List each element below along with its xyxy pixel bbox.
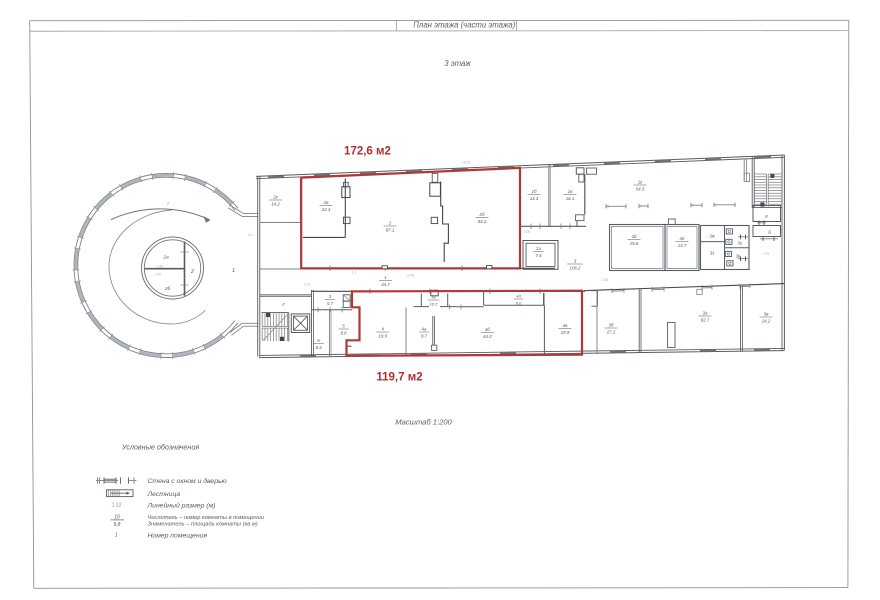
svg-text:19.9: 19.9 (561, 330, 570, 335)
svg-text:1в: 1в (568, 189, 573, 194)
svg-text:1.1: 1.1 (352, 271, 357, 275)
svg-text:19.9: 19.9 (378, 334, 387, 339)
svg-text:19.6: 19.6 (630, 241, 639, 246)
svg-text:1: 1 (232, 268, 235, 274)
svg-text:172,6 м2: 172,6 м2 (344, 146, 391, 158)
svg-text:1а: 1а (536, 246, 541, 251)
svg-text:22.3: 22.3 (321, 207, 331, 212)
svg-text:8.8: 8.8 (340, 331, 347, 336)
svg-text:Условные обозначения: Условные обозначения (121, 442, 200, 451)
svg-text:14.2: 14.2 (762, 319, 771, 324)
svg-text:44.7: 44.7 (381, 282, 390, 287)
svg-text:4б: 4б (485, 327, 490, 332)
svg-text:1.12: 1.12 (112, 503, 122, 509)
svg-text:2б: 2б (164, 286, 171, 292)
svg-text:10.2: 10.2 (430, 302, 439, 307)
svg-text:10: 10 (114, 514, 120, 520)
svg-text:14.2: 14.2 (271, 202, 280, 207)
svg-text:Номер помещения: Номер помещения (148, 532, 208, 539)
svg-text:14.05: 14.05 (462, 161, 470, 165)
svg-text:14.65: 14.65 (406, 274, 414, 278)
svg-text:1.47: 1.47 (304, 283, 311, 287)
svg-text:2в: 2в (323, 200, 329, 205)
svg-text:1: 1 (115, 533, 118, 539)
svg-text:13.3: 13.3 (530, 196, 539, 201)
svg-text:53.2: 53.2 (478, 219, 487, 224)
svg-text:119,7 м2: 119,7 м2 (376, 372, 422, 384)
svg-text:4.6: 4.6 (248, 233, 253, 237)
svg-text:Масштаб 1:200: Масштаб 1:200 (395, 418, 452, 427)
svg-text:16.1: 16.1 (566, 196, 575, 201)
svg-text:2.45: 2.45 (601, 278, 609, 282)
svg-text:4в: 4в (563, 323, 568, 328)
svg-text:1б: 1б (532, 189, 537, 194)
svg-text:План этажа (части этажа): План этажа (части этажа) (413, 21, 515, 30)
svg-text:54.5: 54.5 (636, 187, 645, 192)
svg-text:7.6: 7.6 (535, 253, 542, 258)
svg-text:106.2: 106.2 (570, 266, 582, 271)
svg-text:2: 2 (190, 269, 194, 275)
svg-text:3д: 3д (632, 234, 637, 239)
svg-text:2.40: 2.40 (154, 273, 162, 277)
svg-text:13.7: 13.7 (678, 243, 687, 248)
svg-text:5.7: 5.7 (327, 301, 334, 306)
svg-text:4г: 4г (431, 295, 435, 300)
svg-text:Числитель – номер комнаты в по: Числитель – номер комнаты в помещении (148, 515, 265, 521)
svg-text:Лестница: Лестница (147, 491, 181, 498)
svg-text:3з: 3з (710, 251, 714, 256)
svg-text:7.03: 7.03 (763, 252, 770, 256)
svg-text:Стена с окном и дверью: Стена с окном и дверью (148, 477, 227, 485)
svg-text:2б: 2б (479, 212, 485, 217)
svg-text:2г: 2г (272, 195, 278, 200)
svg-text:3.05: 3.05 (524, 230, 531, 234)
svg-text:3а: 3а (703, 311, 708, 316)
svg-text:87.1: 87.1 (386, 228, 395, 233)
svg-text:62.7: 62.7 (701, 318, 710, 323)
svg-text:3в: 3в (764, 312, 769, 317)
svg-text:3и: 3и (738, 241, 743, 246)
svg-text:2.60: 2.60 (156, 264, 164, 268)
svg-text:Линейный размер (м): Линейный размер (м) (147, 501, 216, 509)
svg-text:2: 2 (388, 221, 392, 226)
svg-text:3б: 3б (609, 323, 614, 328)
svg-text:2а: 2а (162, 255, 169, 261)
svg-text:3е: 3е (680, 236, 685, 241)
svg-text:27.2: 27.2 (606, 330, 616, 335)
svg-text:8.3: 8.3 (315, 345, 322, 350)
svg-text:9.7: 9.7 (421, 334, 428, 339)
svg-text:4а: 4а (422, 327, 427, 332)
svg-text:44.0: 44.0 (483, 334, 492, 339)
svg-text:8: 8 (167, 202, 169, 206)
svg-text:6.0: 6.0 (516, 301, 522, 306)
svg-text:б: б (768, 230, 771, 235)
svg-text:9,8: 9,8 (114, 522, 121, 528)
svg-text:3 этаж: 3 этаж (444, 59, 471, 68)
svg-text:Знаменатель – площадь комнаты: Знаменатель – площадь комнаты (кв.м) (148, 522, 258, 528)
